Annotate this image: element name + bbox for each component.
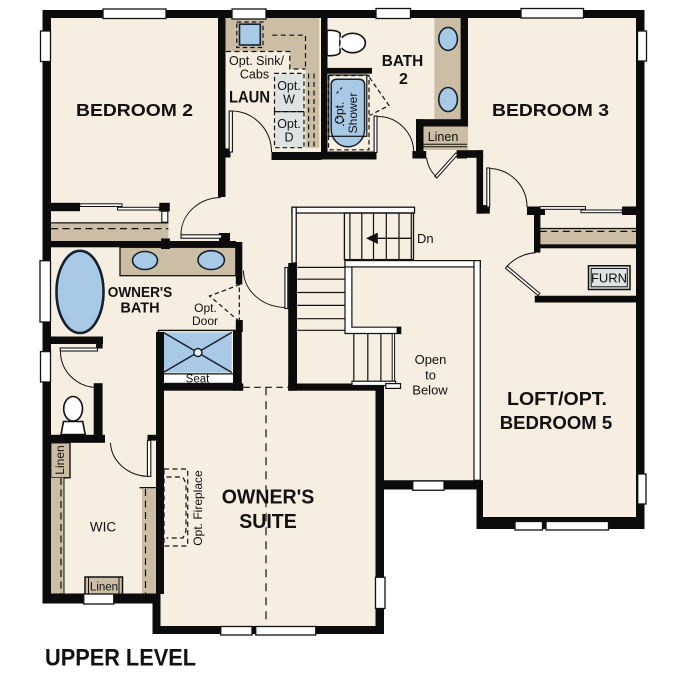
svg-text:Dn: Dn — [417, 231, 434, 246]
svg-text:Linen: Linen — [90, 582, 118, 594]
svg-text:Door: Door — [192, 314, 218, 328]
svg-text:Opt.: Opt. — [277, 79, 301, 93]
svg-text:Cabs: Cabs — [240, 68, 269, 82]
svg-text:Shower: Shower — [346, 93, 360, 134]
svg-text:FURN: FURN — [591, 270, 627, 285]
svg-text:Seat: Seat — [186, 373, 210, 385]
svg-text:UPPER LEVEL: UPPER LEVEL — [45, 645, 196, 672]
svg-text:Opt.: Opt. — [277, 117, 301, 131]
svg-text:SUITE: SUITE — [239, 511, 297, 533]
svg-text:to: to — [425, 367, 436, 382]
svg-text:Opt.: Opt. — [194, 301, 217, 315]
svg-text:OWNER'S: OWNER'S — [222, 487, 315, 509]
svg-text:OWNER'S: OWNER'S — [108, 285, 173, 301]
svg-text:Opt. Fireplace: Opt. Fireplace — [191, 470, 205, 546]
svg-text:Below: Below — [412, 382, 448, 397]
svg-text:2: 2 — [399, 71, 408, 88]
svg-text:BEDROOM 3: BEDROOM 3 — [492, 100, 609, 120]
svg-text:Open: Open — [415, 352, 447, 367]
svg-text:W: W — [283, 93, 295, 107]
svg-text:LAUN: LAUN — [229, 89, 270, 107]
svg-text:BATH: BATH — [120, 301, 159, 317]
svg-text:BEDROOM 2: BEDROOM 2 — [76, 100, 193, 120]
svg-text:Opt. Sink/: Opt. Sink/ — [229, 54, 284, 68]
svg-text:Linen: Linen — [428, 130, 459, 144]
svg-text:Linen: Linen — [53, 445, 67, 474]
svg-text:BATH: BATH — [382, 53, 424, 70]
svg-text:WIC: WIC — [90, 520, 116, 535]
svg-text:Opt.: Opt. — [333, 102, 347, 125]
svg-text:LOFT/OPT.: LOFT/OPT. — [507, 389, 607, 409]
svg-text:BEDROOM 5: BEDROOM 5 — [500, 413, 613, 433]
svg-text:D: D — [284, 131, 293, 145]
